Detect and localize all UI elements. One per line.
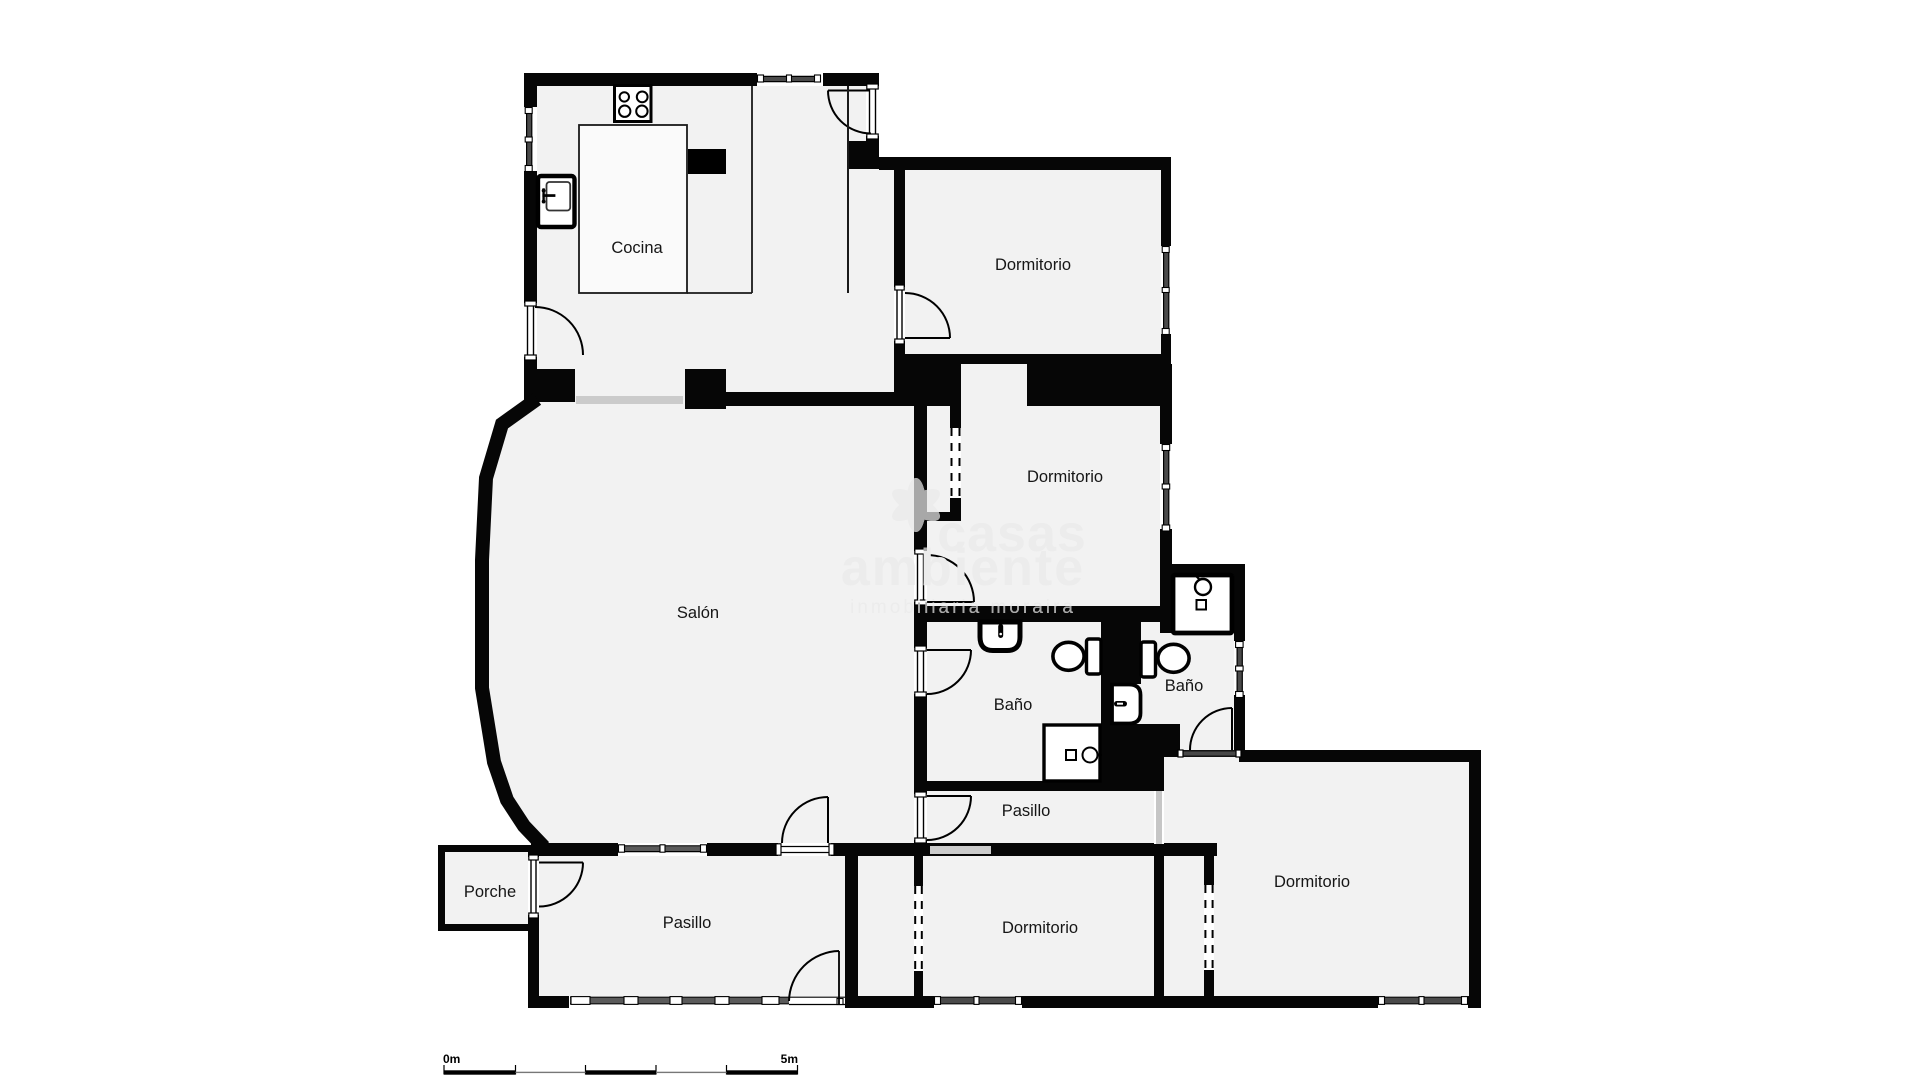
svg-text:Dormitorio: Dormitorio bbox=[1274, 873, 1350, 891]
svg-text:5m: 5m bbox=[781, 1052, 798, 1066]
svg-text:Porche: Porche bbox=[464, 883, 516, 901]
svg-text:0m: 0m bbox=[443, 1052, 460, 1066]
svg-text:ambiente: ambiente bbox=[841, 539, 1085, 597]
svg-text:Pasillo: Pasillo bbox=[663, 914, 712, 932]
svg-text:Dormitorio: Dormitorio bbox=[1027, 468, 1103, 486]
svg-text:Pasillo: Pasillo bbox=[1002, 802, 1051, 820]
svg-text:Baño: Baño bbox=[994, 696, 1033, 714]
svg-text:Salón: Salón bbox=[677, 604, 719, 622]
svg-text:Baño: Baño bbox=[1165, 677, 1204, 695]
svg-text:Dormitorio: Dormitorio bbox=[1002, 919, 1078, 937]
svg-text:Cocina: Cocina bbox=[611, 239, 663, 257]
svg-text:Dormitorio: Dormitorio bbox=[995, 256, 1071, 274]
